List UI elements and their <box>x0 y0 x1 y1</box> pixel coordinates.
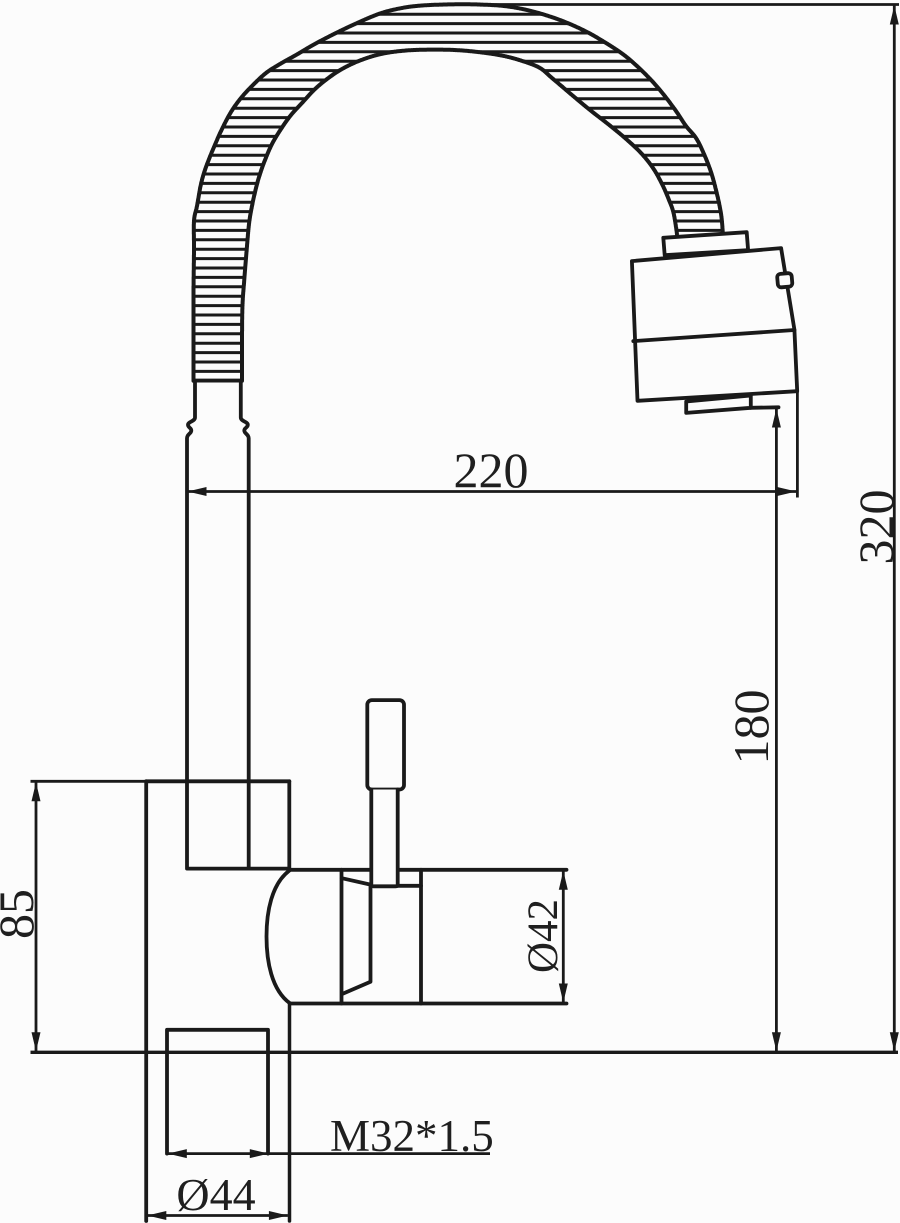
svg-text:220: 220 <box>454 442 529 498</box>
svg-text:Ø42: Ø42 <box>520 899 567 973</box>
svg-text:M32*1.5: M32*1.5 <box>330 1111 494 1161</box>
svg-text:85: 85 <box>0 889 44 939</box>
svg-text:180: 180 <box>723 690 779 765</box>
svg-text:Ø44: Ø44 <box>176 1169 255 1220</box>
svg-text:320: 320 <box>848 490 900 565</box>
